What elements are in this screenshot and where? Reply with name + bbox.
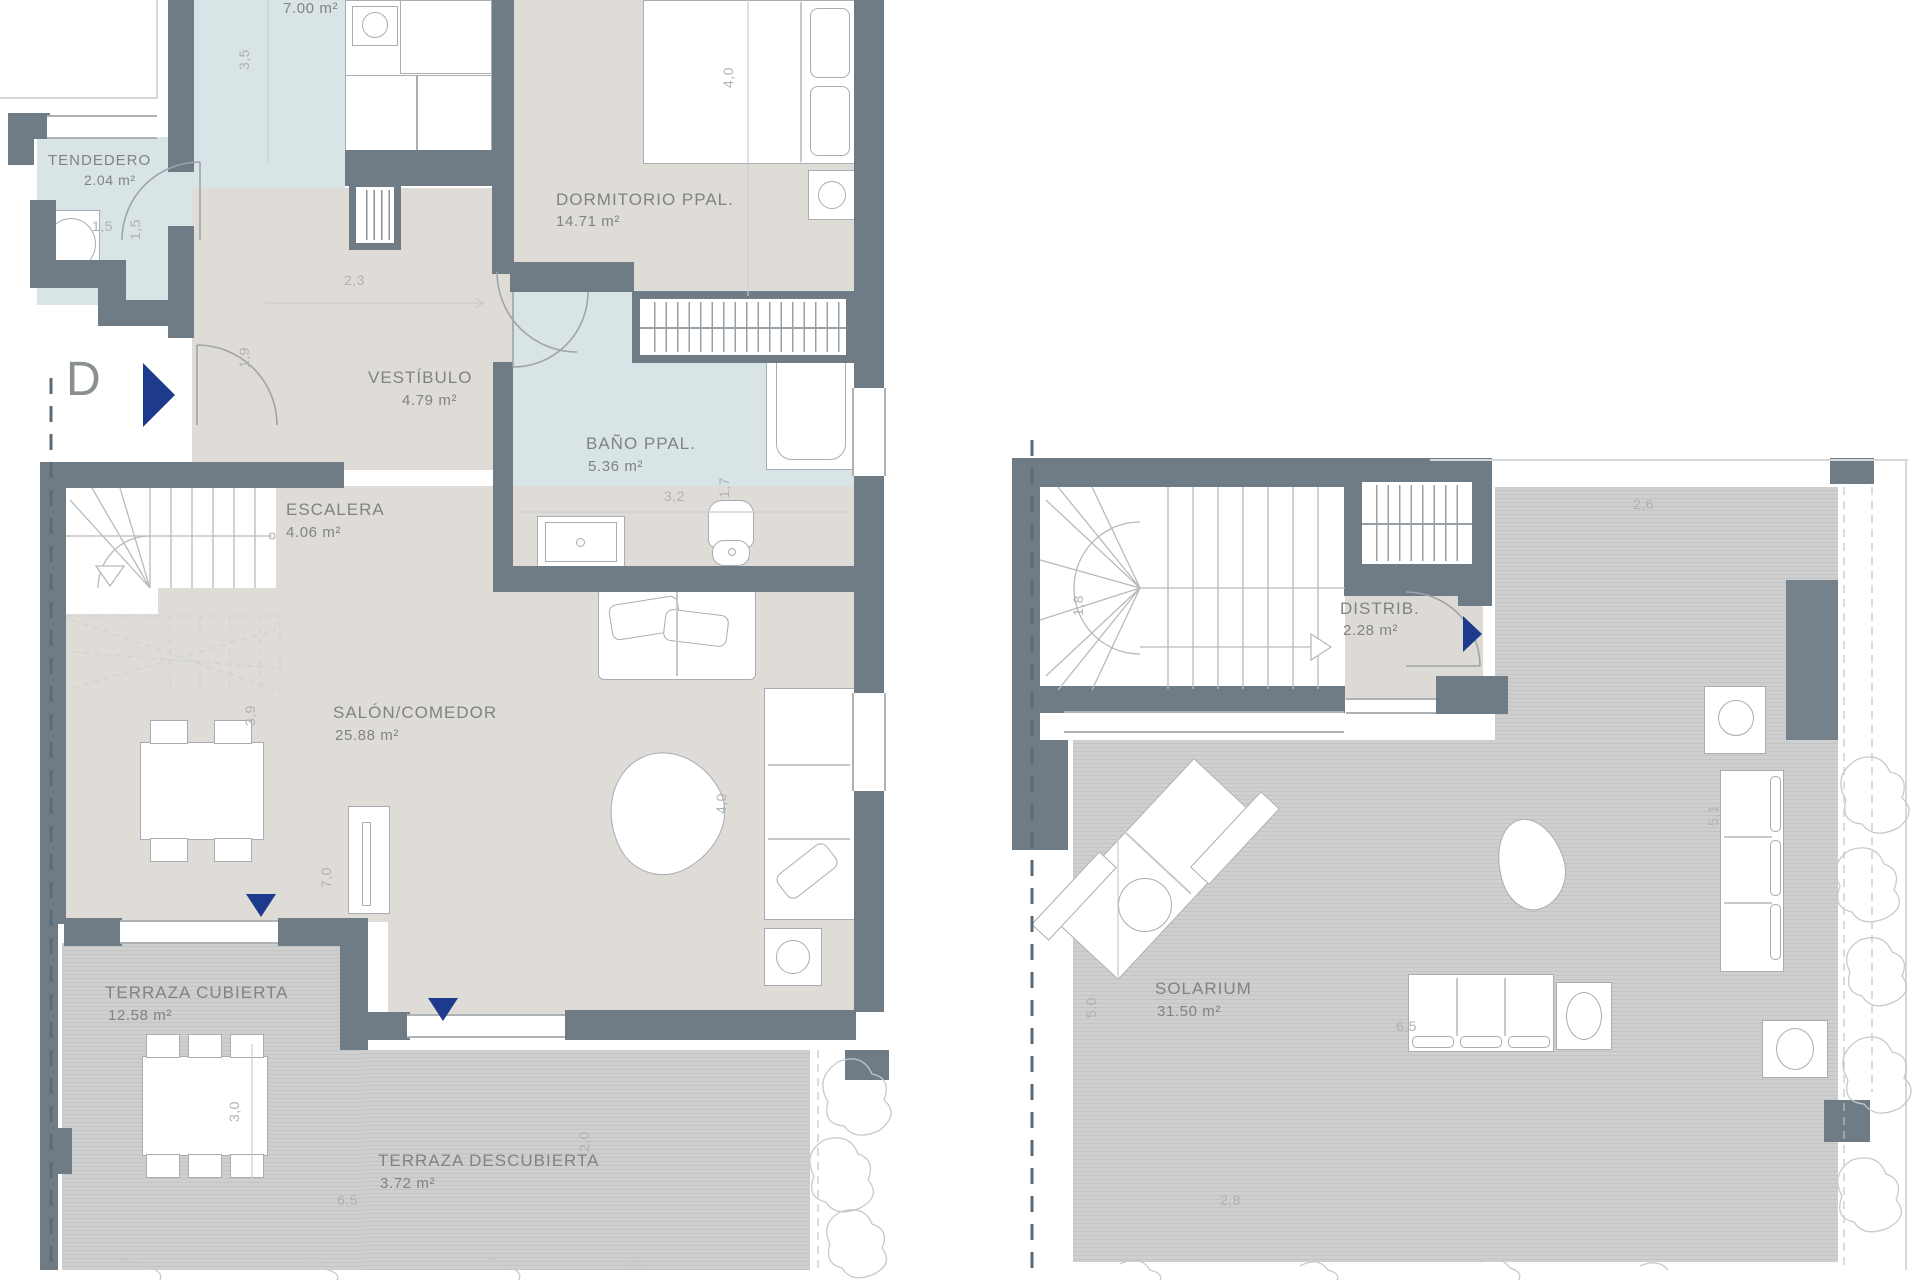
room-label-vestibulo: VESTÍBULO [368, 368, 472, 388]
room-area-terraza-descubierta: 3.72 m² [380, 1175, 435, 1193]
wall [168, 0, 194, 172]
room-area-cocina: 7.00 m² [283, 0, 338, 18]
room-area-terraza-cubierta: 12.58 m² [108, 1007, 172, 1025]
dimension: 6,5 [337, 1192, 358, 1208]
dimension: 5,0 [1083, 997, 1099, 1018]
window [120, 920, 278, 944]
kitchen-appliance [400, 0, 492, 74]
room-area-distrib: 2.28 m² [1343, 622, 1398, 640]
planter-wall [1786, 580, 1838, 740]
window [47, 115, 157, 139]
room-label-dormitorio: DORMITORIO PPAL. [556, 190, 734, 210]
bed-pillow-left [810, 8, 850, 78]
dimension: 2,0 [576, 1131, 592, 1152]
dimension: 2,3 [344, 272, 365, 288]
wall [1458, 590, 1492, 606]
room-area-tendedero: 2.04 m² [84, 172, 136, 189]
room-area-escalera: 4.06 m² [286, 524, 341, 542]
window [407, 1014, 565, 1038]
wall [8, 113, 34, 165]
sofa-seam [768, 764, 850, 766]
pillar [845, 1050, 889, 1080]
dimension: 3,9 [242, 705, 258, 726]
dining-chair [150, 838, 188, 862]
room-area-vestibulo: 4.79 m² [402, 392, 457, 410]
sofa-seam [1504, 978, 1506, 1036]
sofa-back-cushion [1770, 904, 1781, 960]
wall [493, 362, 513, 568]
outdoor-table [142, 1056, 268, 1156]
room-label-bano: BAÑO PPAL. [586, 434, 696, 454]
room-label-tendedero: TENDEDERO [48, 152, 151, 170]
wall [1040, 686, 1345, 713]
window [852, 388, 886, 476]
wall [168, 226, 194, 338]
dimension: 2,6 [1633, 496, 1654, 512]
room-label-salon: SALÓN/COMEDOR [333, 703, 497, 723]
toilet-button-icon [728, 548, 736, 556]
bed-pillow-right [810, 86, 850, 156]
wardrobe-solarium-front [1358, 478, 1476, 568]
vanity-drain-icon [576, 538, 585, 547]
stair-well-main [66, 488, 276, 588]
sofa-back-cushion [1770, 840, 1781, 896]
pillar [1830, 458, 1874, 484]
nightstand-lamp-icon [818, 181, 846, 209]
dimension: 1,5 [92, 218, 113, 234]
dimension: 6,5 [1396, 1018, 1417, 1034]
corner-table-pot-icon [1776, 1028, 1814, 1070]
wall [46, 462, 344, 488]
wall [492, 0, 514, 274]
kitchen-cabinet-b [417, 75, 492, 152]
wall [56, 1128, 72, 1174]
room-area-solarium: 31.50 m² [1157, 1003, 1221, 1021]
window [1064, 711, 1344, 733]
dimension: 1,5 [127, 219, 143, 240]
outdoor-chair [230, 1154, 264, 1178]
dimension: 1,8 [1070, 595, 1086, 616]
dimension: 7,0 [318, 867, 334, 888]
planter-pot-icon [1566, 992, 1602, 1040]
sofa-seam [1724, 836, 1772, 838]
outdoor-chair [188, 1154, 222, 1178]
outdoor-chair [230, 1034, 264, 1058]
wall [64, 918, 122, 946]
wall [510, 262, 634, 292]
room-label-distrib: DISTRIB. [1340, 599, 1420, 619]
outdoor-chair [146, 1034, 180, 1058]
dining-table [140, 742, 264, 840]
dimension: 1,7 [716, 477, 732, 498]
room-area-dormitorio: 14.71 m² [556, 213, 620, 231]
kitchen-sink-bowl-icon [362, 12, 388, 38]
room-area-bano: 5.36 m² [588, 458, 643, 476]
room-label-escalera: ESCALERA [286, 500, 385, 520]
wall [854, 0, 884, 1012]
stair-landing-main [66, 588, 158, 614]
window [1346, 698, 1436, 714]
dimension: 2,8 [1220, 1192, 1241, 1208]
wall [340, 920, 368, 1050]
dimension: 5,1 [1705, 805, 1721, 826]
sofa-back-cushion [1460, 1036, 1502, 1048]
tv-screen [362, 822, 371, 906]
sofa-back-cushion [1508, 1036, 1550, 1048]
side-table-plant-icon [776, 940, 810, 974]
utility-shaft [349, 180, 401, 250]
room-label-solarium: SOLARIUM [1155, 979, 1252, 999]
wall [493, 566, 856, 592]
room-label-terraza-descubierta: TERRAZA DESCUBIERTA [378, 1151, 599, 1171]
wall [368, 1012, 410, 1040]
sofa-seam [768, 838, 850, 840]
window [852, 693, 886, 791]
dimension: 4,0 [720, 67, 736, 88]
dining-chair [214, 838, 252, 862]
wall [1012, 740, 1068, 850]
wall [1436, 676, 1508, 714]
floor-plan-canvas: 7.00 m² TENDEDERO 2.04 m² DORMITORIO PPA… [0, 0, 1920, 1280]
room-area-salon: 25.88 m² [335, 727, 399, 745]
corner-table-pot-icon [1718, 700, 1754, 736]
dimension: 1,9 [236, 347, 252, 368]
unit-letter: D [66, 352, 101, 407]
wall [40, 924, 58, 1270]
round-side-table [1118, 878, 1172, 932]
dimension: 4,0 [713, 793, 729, 814]
room-label-terraza-cubierta: TERRAZA CUBIERTA [105, 983, 289, 1003]
outdoor-chair [146, 1154, 180, 1178]
bed-center-line [800, 2, 802, 162]
kitchen-cabinet-a [345, 75, 417, 152]
wall [1012, 458, 1040, 740]
pillar [1824, 1100, 1870, 1142]
sofa-divider-line [676, 592, 678, 676]
wall [40, 462, 66, 924]
sofa-seam [1456, 978, 1458, 1036]
dimension: 3,0 [226, 1101, 242, 1122]
outdoor-chair [188, 1034, 222, 1058]
wall [565, 1010, 856, 1040]
sofa-seam [1724, 902, 1772, 904]
sofa-back-cushion [1770, 776, 1781, 832]
dimension: 3,5 [236, 49, 252, 70]
stair-well-solarium [1040, 487, 1345, 689]
sofa-back-cushion [1412, 1036, 1454, 1048]
dimension: 3,2 [664, 488, 685, 504]
wardrobe-dormitorio [632, 291, 854, 363]
dining-chair [150, 720, 188, 744]
